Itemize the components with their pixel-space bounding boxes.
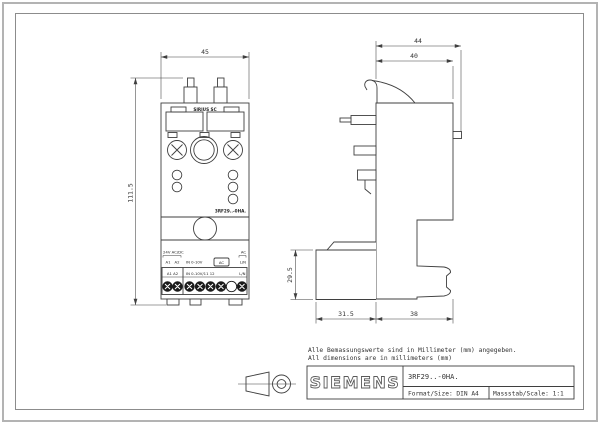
strip-left-label: A1 A2 — [167, 271, 179, 276]
side-dim-40-label: 40 — [410, 52, 418, 60]
strip-right-label: L/N — [239, 271, 245, 276]
ctrl-voltage-label: 24V AC/DC — [163, 250, 184, 255]
side-dim-38-label: 38 — [410, 310, 418, 318]
strip-mid-label: IN 0-10V/11 12 — [186, 271, 215, 276]
note-english: All dimensions are in millimeters (mm) — [308, 355, 452, 362]
siemens-logo: SIEMENS — [310, 373, 401, 392]
side-terminal-block — [316, 242, 376, 300]
pin-a1-label: A1 — [166, 260, 172, 265]
side-dim-295-label: 29.5 — [286, 267, 294, 283]
side-right-tab — [453, 132, 462, 139]
front-terminal-strip: A1 A2 IN 0-10V/11 12 L/N — [162, 268, 247, 295]
front-model-label: 3RF29..-0HA. — [215, 209, 246, 214]
scale: Massstab/Scale: 1:1 — [493, 391, 564, 398]
pin-ln-label: L/N — [240, 260, 246, 265]
part-number: 3RF29..-0HA. — [408, 373, 459, 381]
front-band-knob — [194, 217, 217, 240]
ac-label: AC — [241, 250, 247, 255]
front-dim-width-label: 45 — [201, 48, 209, 56]
side-dim-44-label: 44 — [414, 37, 422, 45]
front-dim-height-label: 111.5 — [127, 183, 135, 203]
format-size: Format/Size: DIN A4 — [408, 391, 479, 398]
terminal-screw-open — [226, 281, 236, 291]
engineering-drawing: 45 111.5 SIRIUS SC — [0, 0, 600, 424]
ac-symbol-label: AC — [219, 260, 225, 265]
side-housing-profile — [376, 103, 453, 299]
sirius-sc-label: SIRIUS SC — [193, 107, 216, 112]
sheet-border — [3, 3, 597, 421]
pin-input-label: IN 0-10V — [186, 260, 203, 265]
pin-a2-label: A2 — [175, 260, 181, 265]
side-dim-315-label: 31.5 — [338, 310, 354, 318]
note-german: Alle Bemassungswerte sind in Millimeter … — [308, 347, 517, 354]
drawing-sheet: 45 111.5 SIRIUS SC — [0, 0, 600, 424]
